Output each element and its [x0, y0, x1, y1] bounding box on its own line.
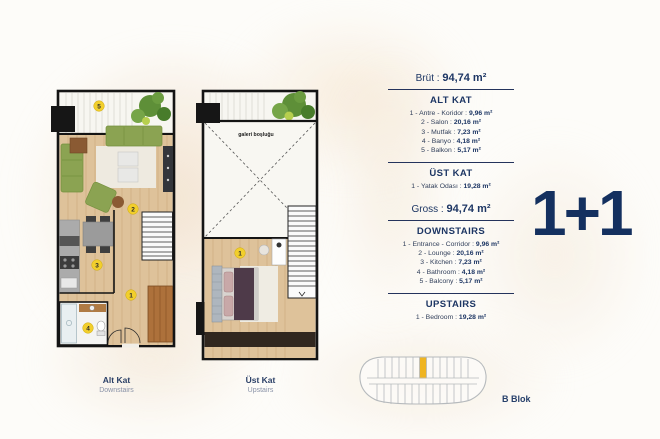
brut-line: Brüt : 94,74 m²: [386, 72, 516, 84]
divider: [388, 162, 514, 163]
svg-text:4: 4: [86, 325, 90, 332]
svg-text:1: 1: [129, 292, 133, 299]
shower: [62, 304, 77, 343]
void-label: galeri boşluğu: [238, 132, 273, 138]
upstairs-heading: UPSTAIRS: [386, 299, 516, 310]
svg-text:2: 2: [131, 206, 135, 213]
desk-chair: [259, 245, 269, 255]
side-table-round: [112, 196, 124, 208]
column-block: [196, 103, 220, 123]
downstairs-heading: DOWNSTAIRS: [386, 226, 516, 237]
room-marker-bedroom: 1: [235, 248, 246, 259]
gross-value: 94,74 m²: [446, 203, 490, 215]
lower-wall-band: [205, 332, 316, 347]
caption-alt-kat: Alt Kat Downstairs: [58, 375, 175, 394]
kitchen-counter: [60, 220, 80, 293]
sofa-top: [106, 126, 162, 146]
ust-kat-heading: ÜST KAT: [386, 168, 516, 179]
room-marker-balcony: 5: [94, 101, 105, 112]
caption-ust-kat-subtitle: Upstairs: [203, 387, 318, 394]
room-line: 1 - Antre - Koridor : 9,96 m²: [386, 109, 516, 118]
room-line: 3 - Kitchen : 7,23 m²: [386, 258, 516, 267]
room-marker-corridor: 1: [126, 290, 137, 301]
room-line: 1 - Bedroom : 19,28 m²: [386, 313, 516, 322]
wardrobe: [212, 266, 222, 322]
divider: [388, 220, 514, 221]
bed: [222, 268, 258, 320]
balcony-area: [205, 91, 316, 121]
brut-label: Brüt :: [416, 73, 440, 84]
column-block: [51, 106, 75, 132]
brochure-page: 5 2 3 1 4: [0, 0, 660, 439]
divider: [388, 293, 514, 294]
floorplan-alt-kat: 5 2 3 1 4: [50, 88, 176, 350]
gross-label: Gross :: [411, 204, 443, 215]
room-line: 1 - Yatak Odası : 19,28 m²: [386, 182, 516, 191]
svg-text:5: 5: [97, 103, 101, 110]
entry-opening: [122, 344, 139, 348]
room-line: 5 - Balcony : 5,17 m²: [386, 277, 516, 286]
gross-line: Gross : 94,74 m²: [386, 203, 516, 215]
alt-kat-heading: ALT KAT: [386, 95, 516, 106]
svg-text:3: 3: [95, 262, 99, 269]
stairs: [142, 212, 173, 260]
svg-text:1: 1: [238, 250, 242, 257]
room-marker-lounge: 2: [128, 204, 139, 215]
room-line: 1 - Entrance - Corridor : 9,96 m²: [386, 240, 516, 249]
side-table-square: [70, 138, 87, 153]
block-label: B Blok: [502, 394, 531, 404]
unit-type-label: 1+1: [531, 176, 631, 250]
tv-unit: [163, 146, 173, 192]
caption-ust-kat: Üst Kat Upstairs: [203, 375, 318, 394]
info-panel: Brüt : 94,74 m² ALT KAT 1 - Antre - Kori…: [386, 70, 516, 323]
room-line: 3 - Mutfak : 7,23 m²: [386, 128, 516, 137]
stairs: [288, 206, 316, 298]
block-highlight-unit: [420, 358, 427, 379]
room-line: 2 - Salon : 20,16 m²: [386, 118, 516, 127]
room-line: 4 - Banyo : 4,18 m²: [386, 137, 516, 146]
caption-alt-kat-subtitle: Downstairs: [58, 387, 175, 394]
block-diagram: [347, 351, 499, 413]
toilet: [97, 321, 105, 336]
floorplan-ust-kat: galeri boşluğu: [196, 88, 320, 364]
caption-alt-kat-title: Alt Kat: [58, 375, 175, 385]
room-line: 5 - Balkon : 5,17 m²: [386, 146, 516, 155]
bathroom: [60, 302, 108, 345]
room-line: 4 - Bathroom : 4,18 m²: [386, 268, 516, 277]
divider: [388, 89, 514, 90]
brut-value: 94,74 m²: [442, 72, 486, 84]
stairs-wood: [148, 286, 173, 342]
room-marker-bathroom: 4: [83, 323, 94, 334]
room-marker-kitchen: 3: [92, 260, 103, 271]
caption-ust-kat-title: Üst Kat: [203, 375, 318, 385]
room-line: 2 - Lounge : 20,16 m²: [386, 249, 516, 258]
